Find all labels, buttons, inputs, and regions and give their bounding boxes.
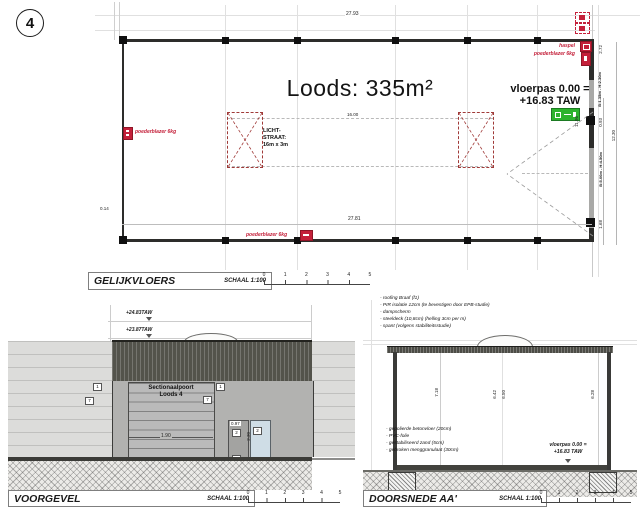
poederblazer-label: poederblazer 6kg (246, 232, 287, 238)
vloerpas-note: vloerpas 0.00 = +16.83 TAW (536, 442, 600, 456)
list-item: - gestabiliseerd zand (5cm) (386, 441, 506, 448)
scale-bar-line (264, 280, 370, 285)
component-tag: 2 (253, 427, 262, 435)
scale-bar-line (248, 498, 340, 503)
area-label: Loods: 335m² (250, 75, 470, 102)
list-item: 2 (303, 272, 309, 280)
level-mark-icon (146, 317, 152, 321)
vloerpas-note: vloerpas 0.00 = +16.83 TAW (498, 84, 602, 107)
neighbour-building-left (8, 341, 112, 457)
list-item: 3 (325, 272, 331, 280)
section-right-wall (607, 352, 611, 470)
list-item: 4 (346, 272, 352, 280)
poederblazer-icon (581, 52, 591, 66)
poederblazer-label: poederblazer 6kg (135, 129, 176, 135)
construction-line (297, 5, 298, 270)
section-dim-left: 7.18 (434, 388, 439, 397)
list-item: 4 (319, 490, 325, 498)
list-item: 0 (261, 272, 267, 280)
scale-tick-numbers: 012345 (261, 272, 373, 280)
plan-scale-bar: 012345 (264, 272, 370, 285)
column-mark (222, 37, 229, 44)
doorsnede-scale-label: SCHAAL 1:100 (499, 496, 541, 502)
list-item: - gepolierde betonvloer (20cm) (386, 427, 506, 434)
lichtstraat-label-line: STRAAT: (263, 135, 297, 142)
component-tag: 2 (232, 429, 241, 437)
construction-line (95, 30, 595, 31)
x-brace (228, 113, 262, 167)
level-top-label: +24.83TAW (126, 310, 152, 316)
level-mark-icon (146, 334, 152, 338)
level-mid-label: +23.87TAW (126, 327, 152, 333)
roof-notes: - roofing Braaf (f1)- PIR isolatie 12cm … (380, 296, 560, 331)
dim-right-total: 12.30 (611, 130, 616, 141)
ground-hatch (8, 461, 312, 490)
list-item: - dampscherm (380, 310, 560, 317)
fire-equipment-dashed-icon (575, 12, 590, 23)
construction-line (114, 2, 115, 40)
construction-line (95, 15, 640, 16)
level-line (108, 321, 311, 322)
door-label-line1: Sectionaalpoort (135, 385, 207, 392)
dim-right-seg-top: 2.72 (598, 45, 603, 54)
list-item: 5 (367, 272, 373, 280)
dim-right-seg-bottom: 1.68 (598, 220, 603, 229)
column-mark (392, 237, 399, 244)
floor-notes: - gepolierde betonvloer (20cm)- PVC-foli… (386, 427, 506, 455)
plan-title: GELIJKVLOERS (94, 275, 175, 287)
component-tag: 7 (85, 397, 94, 405)
gate-centerline (522, 173, 588, 174)
section-dim-mid-a: 6.42 (492, 390, 497, 399)
lichtstraat-box (458, 112, 494, 168)
scale-tick-numbers: 012345 (538, 490, 634, 498)
plan-title-bar: GELIJKVLOERS SCHAAL 1:100 (88, 272, 272, 290)
list-item: - spant (volgens stabiliteitsstudie) (380, 324, 560, 331)
poederblazer-label: poederblazer 6kg (522, 51, 575, 57)
lichtstraat-line (227, 166, 493, 167)
drawing-sheet: 4 (0, 0, 640, 522)
doorsnede-area: - roofing Braaf (f1)- PIR isolatie 12cm … (358, 290, 640, 512)
dim-lichtstraat: 16.00 (346, 112, 359, 117)
lichtstraat-label-line: LICHT- (263, 128, 297, 135)
door-label-line2: Loods 4 (135, 392, 207, 399)
list-item: 3 (300, 490, 306, 498)
list-item: 1 (263, 490, 269, 498)
ground-line-right (312, 458, 355, 460)
construction-line (311, 305, 312, 345)
lichtstraat-label: LICHT- STRAAT: 16m x 3m (263, 128, 297, 149)
list-item: 5 (628, 490, 634, 498)
column-mark (294, 37, 301, 44)
glass-door (250, 420, 271, 459)
poederblazer-icon (300, 230, 313, 241)
haspel-icon (580, 41, 592, 52)
fire-equipment-dashed-icon (575, 23, 590, 34)
column-mark (119, 36, 127, 44)
dim-right-gate: B:5.00m - H:4.50m (598, 152, 603, 187)
door-dim-width: 1.90 (160, 433, 172, 439)
haspel-label: haspel (543, 43, 575, 49)
lichtstraat-label-line: 16m x 3m (263, 142, 297, 149)
sectional-door-label: Sectionaalpoort Loods 4 (135, 385, 207, 399)
dim-wall: 0.14 (99, 206, 110, 211)
list-item: 2 (282, 490, 288, 498)
scale-tick-numbers: 012345 (245, 490, 343, 498)
column-mark (464, 237, 471, 244)
dim-bottom: 27.81 (347, 216, 362, 222)
section-dim-right: 6.28 (590, 390, 595, 399)
gate-swing-lines (505, 106, 597, 242)
component-tag: 7 (203, 396, 212, 404)
vloerpas-line1: vloerpas 0.00 = (498, 84, 602, 96)
plan-area: 27.93 27.81 0.14 Loods: 335m² 16.00 LICH… (0, 0, 640, 295)
component-tag: 1 (93, 383, 102, 391)
side-door-dim: 0.97 (230, 421, 241, 426)
list-item: - PVC-folie (386, 434, 506, 441)
column-mark (222, 237, 229, 244)
vloerpas-line2: +16.83 TAW (536, 449, 600, 456)
voorgevel-scale-bar: 012345 (248, 490, 340, 503)
list-item: - roofing Braaf (f1) (380, 296, 560, 303)
scale-bar-line (541, 498, 631, 503)
dim-top: 27.93 (345, 11, 360, 17)
doorsnede-scale-bar: 012345 (541, 490, 631, 503)
column-mark (392, 37, 399, 44)
list-item: 5 (337, 490, 343, 498)
vloerpas-line1: vloerpas 0.00 = (536, 442, 600, 449)
construction-line (225, 5, 226, 270)
construction-line (395, 5, 396, 270)
list-item: 0 (538, 490, 544, 498)
glass-door-dim: 2.30 (246, 432, 251, 441)
plan-scale-label: SCHAAL 1:100 (224, 278, 266, 284)
section-dim-mid-b: 6.50 (501, 390, 506, 399)
list-item: 4 (610, 490, 616, 498)
plan-top-wall (122, 39, 592, 42)
list-item: - steeldeck (10,8cm) (helling 3cm per m) (380, 317, 560, 324)
voorgevel-title-bar: VOORGEVEL SCHAAL 1:100 (8, 490, 255, 507)
column-mark (464, 37, 471, 44)
list-item: 1 (556, 490, 562, 498)
x-brace (459, 113, 493, 167)
dim-right-seg-mid: 0.93 (598, 118, 603, 127)
voorgevel-area: +24.83TAW +23.87TAW Sectionaalpoort Lood… (0, 300, 358, 512)
construction-line (110, 305, 111, 345)
lichtstraat-line (227, 118, 493, 119)
neighbour-building-right (312, 341, 355, 457)
construction-line (119, 2, 120, 40)
voorgevel-title: VOORGEVEL (14, 493, 81, 505)
doorsnede-title: DOORSNEDE AA' (369, 493, 457, 505)
list-item: 1 (282, 272, 288, 280)
component-tag: 1 (216, 383, 225, 391)
plan-left-wall (122, 39, 124, 242)
list-item: 2 (574, 490, 580, 498)
dim-chain-line (616, 42, 617, 245)
dim-chain-line (603, 98, 604, 245)
roof-deck (387, 346, 613, 353)
list-item: 0 (245, 490, 251, 498)
dim-right-window: B:1.35m - H:2.30m (597, 72, 602, 107)
construction-line (371, 300, 372, 472)
level-mark-icon (565, 459, 571, 463)
doorsnede-title-bar: DOORSNEDE AA' SCHAAL 1:100 (363, 490, 547, 507)
column-mark (119, 236, 127, 244)
list-item: - gebroken menggranulaat (30cm) (386, 448, 506, 455)
poederblazer-icon (123, 127, 133, 140)
list-item: 3 (592, 490, 598, 498)
lichtstraat-box (227, 112, 263, 168)
list-item: - PIR isolatie 12cm (te bevestigen door … (380, 303, 560, 310)
dim-right-inner: 11.96 (574, 116, 579, 127)
cladding-band (112, 340, 312, 385)
voorgevel-scale-label: SCHAAL 1:100 (207, 496, 249, 502)
column-mark (534, 37, 541, 44)
